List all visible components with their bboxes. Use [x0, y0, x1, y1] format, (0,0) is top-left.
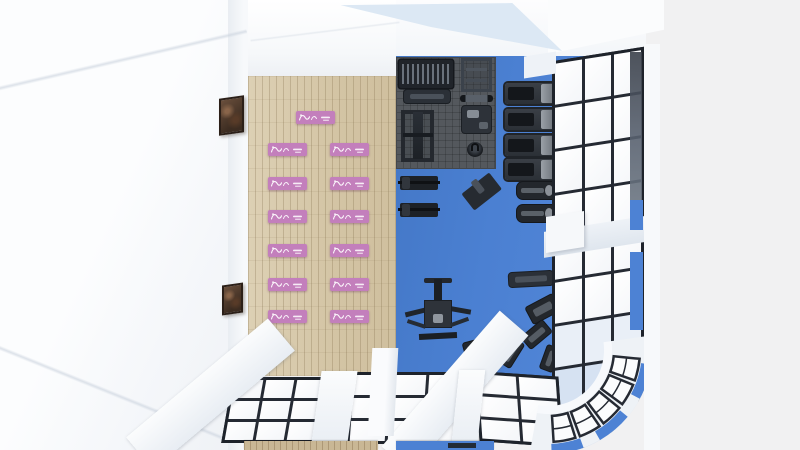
yoga-mat[interactable] [268, 278, 307, 291]
treadmill[interactable] [505, 83, 555, 104]
yoga-mat-print [296, 111, 335, 124]
yoga-mat-print [330, 210, 369, 223]
window-pane [479, 397, 518, 419]
window-pane [585, 274, 612, 319]
treadmill[interactable] [505, 159, 555, 180]
window-pane [521, 422, 560, 444]
yoga-mat-print [268, 244, 307, 257]
cable-crossover-armR [451, 307, 472, 315]
yoga-mat-print [268, 143, 307, 156]
window-pane [555, 323, 582, 368]
right-glass-reflection-strip [630, 52, 642, 200]
yoga-mat[interactable] [330, 210, 369, 223]
press-machine[interactable] [462, 106, 491, 133]
treadmill[interactable] [505, 135, 555, 156]
cross-beam-junction-box [546, 211, 584, 253]
window-pane [256, 422, 287, 440]
yoga-mat[interactable] [268, 210, 307, 223]
window-pane [555, 279, 582, 324]
window-pane [555, 60, 582, 105]
window-pane [585, 318, 612, 363]
yoga-mat-print [330, 177, 369, 190]
window-pane [259, 401, 290, 419]
cable-crossover[interactable] [406, 278, 470, 344]
bottom-window-section-3 [475, 371, 564, 447]
right-exterior-wall-band [644, 44, 660, 450]
picture-frame[interactable] [219, 95, 244, 136]
yoga-mat[interactable] [330, 278, 369, 291]
yoga-mat-print [268, 210, 307, 223]
barbell-stand[interactable] [400, 176, 438, 190]
power-rack[interactable] [401, 110, 434, 162]
bottom-sill-wood [244, 441, 378, 450]
yoga-mat[interactable] [268, 244, 307, 257]
yoga-mat-print [330, 244, 369, 257]
window-pane [263, 380, 294, 398]
cable-crossover-armL [404, 307, 425, 316]
window-pane [585, 99, 612, 144]
gym-room-render [0, 0, 800, 450]
window-pane [614, 357, 641, 402]
window-pane [585, 362, 612, 407]
window-pane [225, 422, 256, 440]
yoga-mat-print [330, 310, 369, 323]
cable-crossover-armR2 [449, 317, 468, 327]
bottom-sill-blue [396, 441, 494, 450]
flat-bench[interactable] [404, 90, 450, 103]
exterior-blue-accent [630, 252, 643, 330]
treadmill[interactable] [505, 109, 555, 130]
barbell[interactable] [460, 95, 493, 102]
window-pane [520, 399, 559, 421]
yoga-mat-print [330, 278, 369, 291]
yoga-mat-print [330, 143, 369, 156]
yoga-mat[interactable] [330, 177, 369, 190]
window-pane [585, 143, 612, 188]
yoga-mat-print [268, 177, 307, 190]
window-pane [585, 55, 612, 100]
flat-bench[interactable] [509, 271, 554, 287]
exercise-bike[interactable] [517, 182, 555, 199]
kettlebell[interactable] [467, 142, 483, 157]
window-pane [614, 401, 641, 446]
yoga-mat-print [268, 310, 307, 323]
yoga-mat[interactable] [268, 310, 307, 323]
window-pane [555, 103, 582, 148]
yoga-mat[interactable] [268, 143, 307, 156]
cable-crossover-seat [433, 314, 443, 323]
window-pane [555, 147, 582, 192]
yoga-mat[interactable] [330, 310, 369, 323]
window-pane [585, 406, 612, 450]
yoga-mat[interactable] [330, 143, 369, 156]
yoga-mat[interactable] [330, 244, 369, 257]
yoga-mat[interactable] [268, 177, 307, 190]
barbell-stand[interactable] [400, 203, 438, 217]
storage-rack[interactable] [461, 58, 492, 92]
window-pane [518, 377, 557, 399]
window-pane [481, 419, 520, 441]
picture-frame[interactable] [222, 283, 243, 316]
exterior-blue-accent [630, 200, 643, 230]
yoga-mat-instructor[interactable] [296, 111, 335, 124]
dumbbell-rack[interactable] [399, 60, 453, 88]
yoga-mat-print [268, 278, 307, 291]
window-pane [228, 401, 259, 419]
support-column [368, 348, 399, 436]
cable-crossover-base [419, 332, 458, 340]
